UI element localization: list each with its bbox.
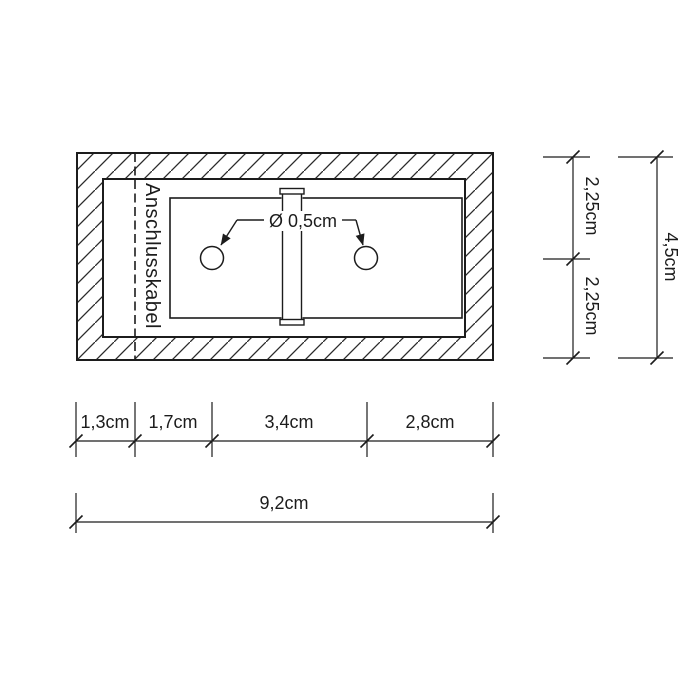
dim-label-bottom-3: 3,4cm bbox=[264, 413, 313, 431]
drill-hole-left bbox=[201, 247, 224, 270]
connector-bottom-cap bbox=[280, 320, 304, 326]
center-connector bbox=[280, 189, 304, 326]
dim-label-right-total: 4,5cm bbox=[662, 232, 680, 281]
drawing-geometry bbox=[0, 0, 700, 700]
drill-hole-right bbox=[355, 247, 378, 270]
dim-label-bottom-4: 2,8cm bbox=[405, 413, 454, 431]
dim-label-right-upper: 2,25cm bbox=[583, 176, 601, 235]
cable-label: Anschlusskabel bbox=[142, 183, 162, 329]
dim-label-bottom-1: 1,3cm bbox=[80, 413, 129, 431]
dim-label-right-lower: 2,25cm bbox=[583, 276, 601, 335]
dim-label-bottom-2: 1,7cm bbox=[148, 413, 197, 431]
dim-label-bottom-total: 9,2cm bbox=[259, 494, 308, 512]
connector-top-cap bbox=[280, 189, 304, 195]
technical-drawing-canvas: Anschlusskabel Ø 0,5cm 2,25cm 2,25cm 4,5… bbox=[0, 0, 700, 700]
hole-diameter-label: Ø 0,5cm bbox=[266, 211, 340, 231]
